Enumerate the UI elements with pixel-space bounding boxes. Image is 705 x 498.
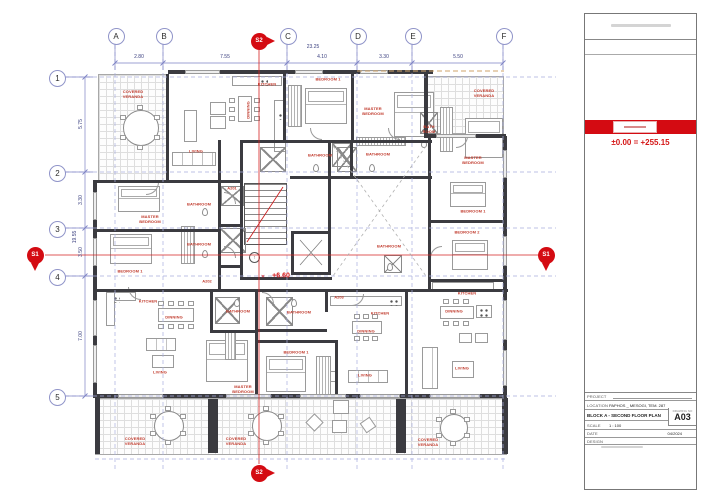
chair [165,440,171,445]
section-marker-arrow [267,469,275,477]
room-label: COVERED VERANDA [474,89,494,99]
chair [278,414,284,419]
chair [168,301,174,306]
room-label: KITCHEN [139,300,157,305]
section-marker: S2 [251,33,268,50]
room-label: BATHROOM [187,243,211,248]
wall [405,292,408,396]
furniture [210,102,226,115]
toilet [202,208,208,216]
chair [165,406,171,411]
window [503,236,507,266]
dimension-top: 7.55 [220,54,230,60]
dimension-left: 7.00 [78,331,84,341]
room-label: MASTER BEDROOM [232,385,254,395]
grid-column-bubble: D [350,28,367,45]
chair [137,145,143,150]
room-label: MASTER BEDROOM [462,156,484,166]
window [93,238,97,266]
room-label: BATHROOM [287,311,311,316]
chair [363,336,369,341]
location-label: LOCATION [585,403,609,408]
chair [354,336,360,341]
cooktop [388,298,398,306]
grid-row-bubble: 5 [49,389,66,406]
room-label: LIVING [358,374,372,379]
room-label: COVERED VERANDA [125,437,145,447]
chair [453,299,459,304]
chair [450,441,456,446]
furniture [152,355,174,368]
room-label: LIVING [189,150,203,155]
architect-logo [611,24,671,27]
chair [464,433,470,438]
dimension-top: 4.10 [317,54,327,60]
window [430,394,480,398]
chair [178,324,184,329]
date-label: DATE [585,431,609,436]
dimension-top-total: 23.25 [307,44,320,50]
chair [150,414,156,419]
room-label: DINNING [357,330,375,335]
furniture [332,420,347,433]
chair [158,324,164,329]
staircase [244,183,287,245]
chair [229,98,235,103]
wall [428,136,431,292]
scale-label: SCALE [585,423,609,428]
chair [254,107,260,112]
toilet [291,299,297,307]
wall [255,292,258,396]
grid-column-bubble: F [496,28,513,45]
datum-level-note: ±0.00 = +255.15 [585,138,696,147]
level-annotation: +6.60 [272,273,290,280]
room-label: COVERED VERANDA [123,90,143,100]
section-marker: S1 [538,247,555,264]
notes-micro-text [601,446,643,448]
banner-inset [613,121,657,133]
unit-label: A202 [202,279,212,284]
room-label: BATHROOM [366,153,390,158]
bed [305,88,347,124]
door-swing [262,292,274,304]
chair [354,314,360,319]
window [300,394,346,398]
section-marker-arrow [267,37,275,45]
room-label: BEDROOM 1 [117,270,142,275]
grid-column-bubble: B [156,28,173,45]
wardrobe [440,107,453,152]
dimension-left: 3.30 [78,195,84,205]
shower-tray [260,147,286,172]
furniture [333,400,349,414]
wall [257,329,327,332]
chair [229,107,235,112]
dimension-left-total: 19.55 [72,231,78,244]
door-swing [430,246,442,258]
furniture [459,333,472,343]
wardrobe [316,356,331,396]
room-label: LIVING [153,371,167,376]
window [503,150,507,178]
stair-direction-icon: ↑ [249,252,260,263]
chair [248,414,254,419]
section-marker: S1 [27,247,44,264]
room-label: DINNING [445,310,463,315]
cooktop [112,295,120,303]
wall [240,140,432,143]
wall [283,70,286,142]
banner-micro-text [624,126,646,128]
scale-value: 1 : 100 [609,423,621,428]
veranda-pillar [502,398,508,454]
toilet [202,250,208,258]
room-label: BATHROOM [308,154,332,159]
window [360,70,388,74]
dimension-top: 2.80 [134,54,144,60]
chair [254,98,260,103]
bed [266,356,306,392]
titleblock-header [585,14,696,40]
room-label: BATHROOM [187,203,211,208]
bed [450,182,486,207]
wall [93,289,508,292]
window [93,345,97,383]
wall [428,279,506,282]
drawing-number-box: DRAWING NO A03 [668,408,696,426]
wall [210,330,258,333]
room-label: KITCHEN [371,312,389,317]
chair [363,314,369,319]
cooktop [478,307,490,317]
wall [257,340,337,343]
toilet [369,164,375,172]
bed [110,234,152,264]
room-label: BEDROOM 1 [283,351,308,356]
veranda-pillar [396,399,406,453]
chair [158,301,164,306]
room-label: DINNING [165,316,183,321]
chair [464,417,470,422]
chair [180,431,186,436]
wall [325,292,328,312]
chair [450,409,456,414]
location-value: PAPHOS _ MESOGI, TEM. 287 [609,403,665,408]
grid-row-bubble: 4 [49,269,66,286]
grid-column-bubble: A [108,28,125,45]
chair [263,440,269,445]
room-label: BEDROOM 1 [460,210,485,215]
window [93,192,97,220]
dimension-left: 5.75 [78,119,84,129]
room-label: KITCHEN [458,292,476,297]
bed [465,118,503,158]
section-marker-arrow [31,263,39,271]
chair [453,321,459,326]
chair [443,321,449,326]
window [360,394,400,398]
furniture [475,333,488,343]
window [93,300,97,336]
toilet [313,164,319,172]
room-label: BATHROOM [226,310,250,315]
sofa [422,347,438,389]
drawing-sheet: ABCDEF123452.807.554.103.305.5023.255.75… [0,0,705,498]
veranda-pillar [95,398,100,454]
section-marker: S2 [251,465,268,482]
wardrobe [288,85,302,127]
grid-row-bubble: 3 [49,221,66,238]
chair [137,105,143,110]
sofa [146,338,176,351]
chair [278,431,284,436]
chair [120,135,126,140]
room-label: DINNING [247,101,252,119]
furniture [210,116,226,129]
wardrobe [225,332,236,360]
chair [154,135,160,140]
chair [178,301,184,306]
window [118,394,163,398]
chair [463,321,469,326]
room-label: MASTER BEDROOM [139,215,161,225]
shower-tray [332,143,352,167]
grid-column-bubble: C [280,28,297,45]
unit-label: A203 [334,295,344,300]
drawing-number: A03 [669,413,696,422]
drawing-title: BLOCK A - SECOND FLOOR PLAN [585,413,661,418]
window [185,70,220,74]
room-label: COVERED VERANDA [418,438,438,448]
wall [218,140,221,292]
level-marker-icon: ✕ [261,274,265,280]
room-label: BEDROOM 2 [454,231,479,236]
room-label: BATH ROOM [423,125,436,135]
dimension-top: 5.50 [453,54,463,60]
window [503,300,507,340]
wall [95,180,243,183]
room-label: COVERED VERANDA [226,437,246,447]
wall [335,340,338,396]
project-row: PROJECT [585,393,696,401]
wall [210,292,213,332]
chair [150,431,156,436]
room-label: LIVING [455,367,469,372]
grid-row-bubble: 1 [49,70,66,87]
room-label: KITCHEN [258,83,276,88]
room-label: BATHROOM [377,245,401,250]
veranda-pillar [208,399,218,453]
chair [229,116,235,121]
unit-label: A201 [227,186,237,191]
chair [254,116,260,121]
window [295,70,323,74]
chair [443,299,449,304]
chair [248,431,254,436]
wall [428,220,506,223]
furniture [184,110,197,142]
chair [463,299,469,304]
chair [188,324,194,329]
grid-row-bubble: 2 [49,165,66,182]
divider [585,54,696,55]
chair [168,324,174,329]
room-label: MASTER BEDROOM [362,107,384,117]
chair [263,406,269,411]
window [503,350,507,386]
chair [372,336,378,341]
wall [166,74,169,182]
elevator-shaft [291,231,331,275]
date-value: 04/2024 [668,431,696,436]
wall [290,176,432,179]
chair [436,417,442,422]
wall [95,229,220,232]
grid-column-bubble: E [405,28,422,45]
door-swing [310,128,322,140]
dimension-left: 3.50 [78,247,84,257]
date-row: DATE 04/2024 [585,430,696,438]
window [436,134,476,138]
chair [154,115,160,120]
bed [452,240,488,270]
room-label: BEDROOM 1 [315,78,340,83]
title-block: ±0.00 = +255.15 PROJECT LOCATION PAPHOS … [584,13,697,490]
project-label: PROJECT [585,394,609,399]
toilet [234,299,240,307]
wall [351,70,354,142]
chair [180,414,186,419]
wall [240,143,243,280]
titleblock-notes-area [585,438,696,489]
section-marker-arrow [542,263,550,271]
chair [188,301,194,306]
dimension-top: 3.30 [379,54,389,60]
chair [120,115,126,120]
wall [350,143,353,178]
elevation-banner [585,120,696,134]
project-value-line [613,395,692,399]
toilet [387,263,393,271]
